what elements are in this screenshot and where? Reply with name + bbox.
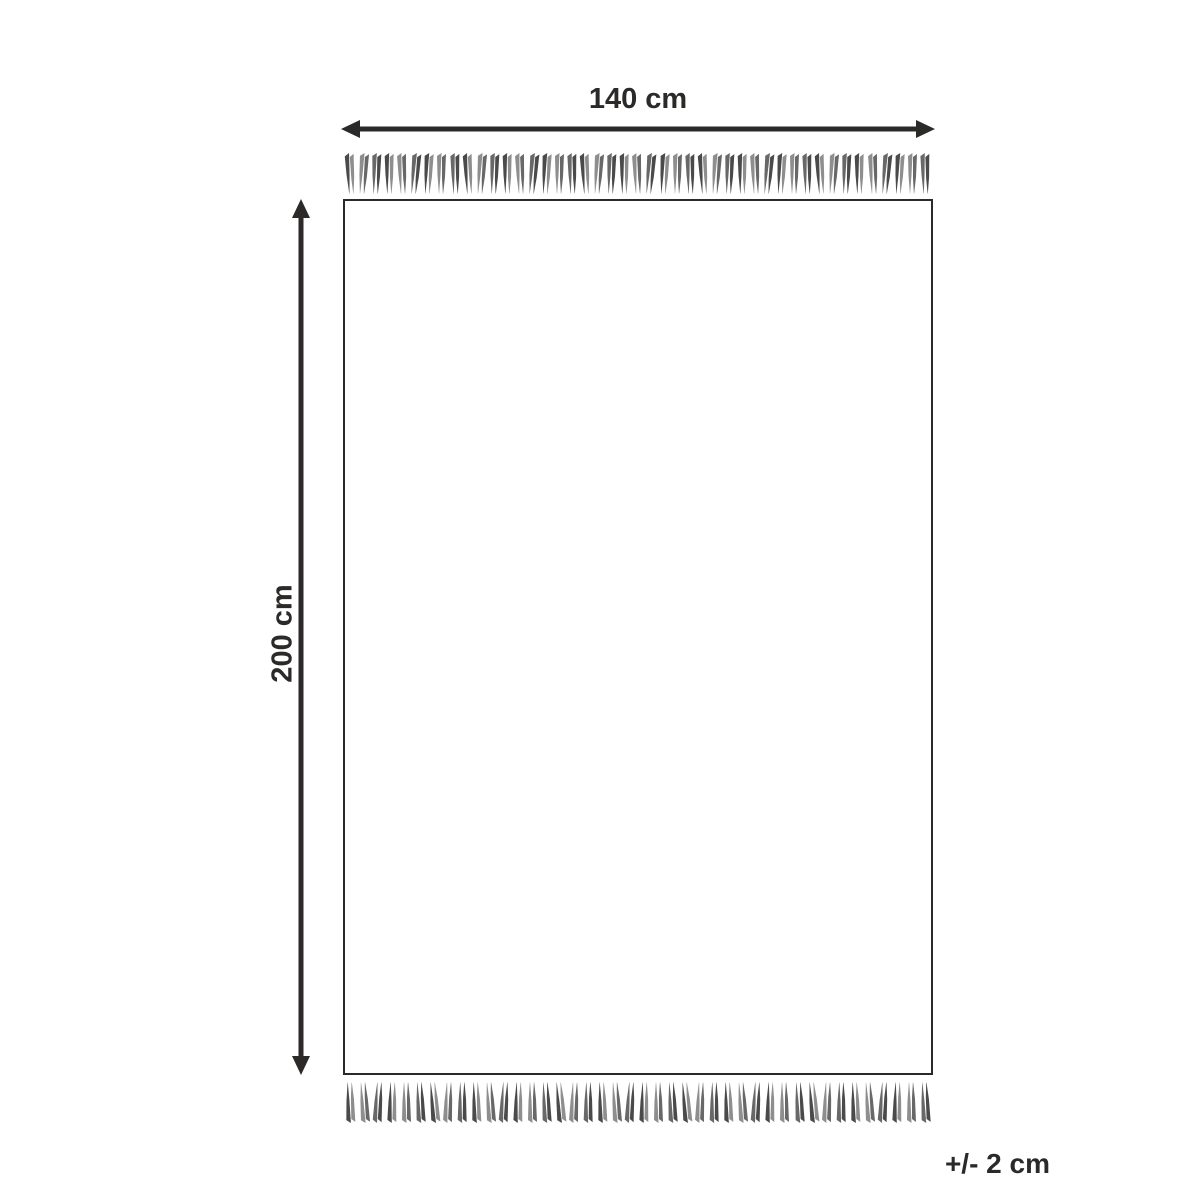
fringe-tassel: [473, 149, 489, 200]
fringe-tassel: [400, 1077, 413, 1127]
fringe-tassel: [819, 1077, 835, 1128]
fringe-tassel: [875, 1077, 891, 1128]
fringe-tassel: [370, 149, 384, 199]
fringe-tassel: [567, 1077, 583, 1128]
fringe-tassel: [370, 1077, 386, 1128]
fringe-tassel: [722, 1077, 736, 1127]
fringe-tassel: [511, 1077, 526, 1127]
fringe-tassel: [637, 1077, 652, 1127]
bottom-fringe: [344, 1077, 932, 1127]
fringe-tassel: [671, 149, 684, 199]
fringe-tassel: [470, 1077, 484, 1127]
height-arrowhead-bottom: [292, 1056, 310, 1075]
fringe-tassel: [905, 1077, 918, 1127]
fringe-tassel: [764, 1077, 779, 1127]
fringe-tassel: [693, 1077, 709, 1128]
top-fringe: [344, 149, 932, 199]
rug-outline: [343, 199, 933, 1075]
tolerance-label: +/- 2 cm: [800, 1148, 1050, 1180]
fringe-tassel: [890, 1077, 905, 1127]
height-arrowhead-top: [292, 199, 310, 218]
fringe-tassel: [848, 1077, 862, 1127]
fringe-tassel: [918, 1077, 933, 1127]
fringe-tassel: [792, 1077, 807, 1127]
fringe-tassel: [892, 149, 907, 199]
fringe-tassel: [435, 149, 448, 199]
width-arrowhead-left: [341, 120, 360, 138]
width-dimension-arrow: [341, 117, 935, 141]
fringe-tassel: [708, 1077, 722, 1127]
fringe-tassel: [385, 1077, 400, 1127]
fringe-tassel: [918, 149, 933, 199]
fringe-tassel: [778, 1077, 791, 1127]
fringe-tassel: [422, 149, 437, 199]
width-dimension-label: 140 cm: [343, 83, 933, 116]
fringe-tassel: [553, 149, 566, 199]
fringe-tassel: [906, 149, 919, 199]
fringe-tassel: [413, 1077, 428, 1127]
fringe-tassel: [834, 1077, 848, 1127]
diagram-canvas: 140 cm 200 cm +/- 2 cm: [0, 0, 1200, 1200]
fringe-tassel: [539, 149, 554, 199]
fringe-tassel: [652, 1077, 665, 1127]
fringe-tassel: [456, 1077, 470, 1127]
fringe-tassel: [788, 149, 801, 199]
fringe-tassel: [657, 149, 672, 199]
fringe-tassel: [805, 1077, 821, 1128]
fringe-tassel: [722, 149, 736, 199]
width-arrowhead-right: [916, 120, 935, 138]
fringe-tassel: [605, 149, 619, 199]
fringe-tassel: [774, 149, 789, 199]
fringe-tassel: [861, 1077, 877, 1128]
fringe-tassel: [441, 1077, 457, 1128]
fringe-tassel: [596, 1077, 610, 1127]
height-dimension-label: 200 cm: [267, 534, 300, 734]
fringe-tassel: [526, 1077, 539, 1127]
fringe-tassel: [582, 1077, 596, 1127]
fringe-tassel: [487, 149, 501, 199]
fringe-tassel: [344, 1077, 358, 1127]
fringe-tassel: [853, 149, 867, 199]
